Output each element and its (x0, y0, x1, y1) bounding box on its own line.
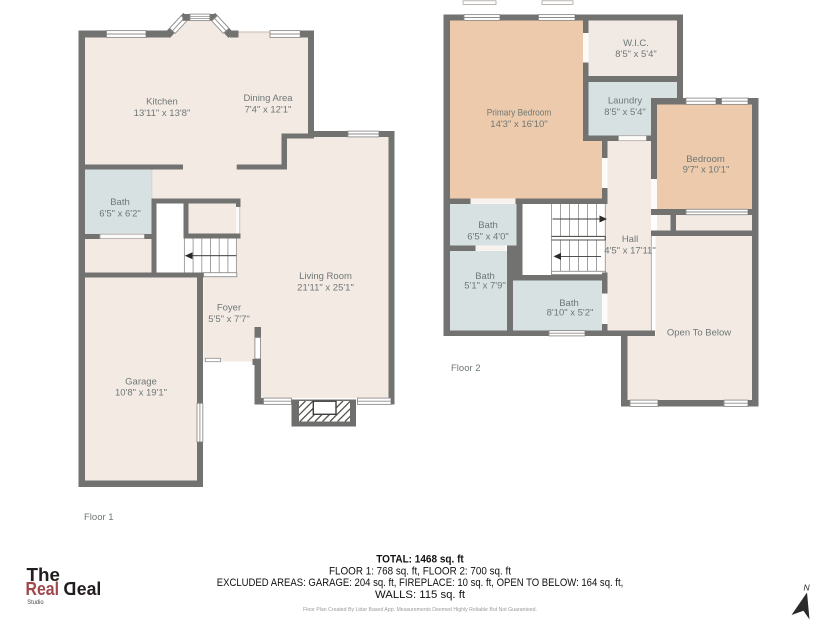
svg-text:Floor 1: Floor 1 (84, 512, 114, 523)
svg-text:Real: Real (26, 579, 60, 599)
svg-text:6'5" x 4'0": 6'5" x 4'0" (467, 231, 509, 242)
svg-text:Garage: Garage (125, 377, 157, 388)
svg-text:5'5" x 7'7": 5'5" x 7'7" (208, 314, 250, 325)
svg-text:Foyer: Foyer (217, 303, 241, 314)
svg-text:9'7" x 10'1": 9'7" x 10'1" (683, 165, 730, 176)
svg-text:FLOOR 1: 768 sq. ft, FLOOR 2:: FLOOR 1: 768 sq. ft, FLOOR 2: 700 sq. ft (329, 565, 511, 577)
svg-text:eal: eal (77, 579, 102, 599)
svg-text:Open To Below: Open To Below (667, 328, 731, 339)
svg-text:WALLS: 115 sq. ft: WALLS: 115 sq. ft (375, 589, 465, 601)
svg-text:Hall: Hall (622, 234, 638, 245)
svg-text:Dining Area: Dining Area (243, 93, 293, 104)
svg-text:Floor 2: Floor 2 (451, 363, 481, 374)
svg-text:8'5" x 5'4": 8'5" x 5'4" (615, 49, 657, 60)
svg-text:Bath: Bath (478, 220, 498, 231)
svg-text:14'3" x 16'10": 14'3" x 16'10" (490, 119, 547, 130)
svg-text:D: D (63, 579, 76, 599)
svg-text:7'4" x 12'1": 7'4" x 12'1" (245, 105, 292, 116)
svg-text:5'1" x 7'9": 5'1" x 7'9" (464, 281, 506, 292)
svg-text:Living Room: Living Room (299, 271, 352, 282)
svg-text:Primary Bedroom: Primary Bedroom (487, 108, 552, 119)
svg-text:W.I.C.: W.I.C. (623, 38, 649, 49)
svg-text:8'5" x 5'4": 8'5" x 5'4" (604, 107, 646, 118)
svg-text:EXCLUDED AREAS: GARAGE: 204 sq: EXCLUDED AREAS: GARAGE: 204 sq. ft, FIRE… (217, 577, 624, 589)
svg-text:21'11" x 25'1": 21'11" x 25'1" (297, 283, 354, 294)
svg-text:6'5" x 6'2": 6'5" x 6'2" (99, 209, 141, 220)
svg-text:Kitchen: Kitchen (146, 97, 178, 108)
svg-text:Studio: Studio (27, 600, 44, 606)
svg-text:Bath: Bath (110, 197, 130, 208)
svg-text:4'5" x 17'11": 4'5" x 17'11" (604, 246, 655, 257)
svg-text:Floor Plan Created By Lidar Ba: Floor Plan Created By Lidar Based App. M… (303, 607, 537, 613)
svg-text:10'8" x 19'1": 10'8" x 19'1" (115, 388, 167, 399)
svg-text:Laundry: Laundry (608, 96, 643, 107)
svg-text:TOTAL: 1468 sq. ft: TOTAL: 1468 sq. ft (376, 554, 464, 566)
svg-text:13'11" x 13'8": 13'11" x 13'8" (134, 108, 191, 119)
svg-text:Bedroom: Bedroom (686, 154, 725, 165)
svg-text:N: N (804, 583, 811, 593)
svg-text:8'10" x 5'2": 8'10" x 5'2" (547, 308, 594, 319)
